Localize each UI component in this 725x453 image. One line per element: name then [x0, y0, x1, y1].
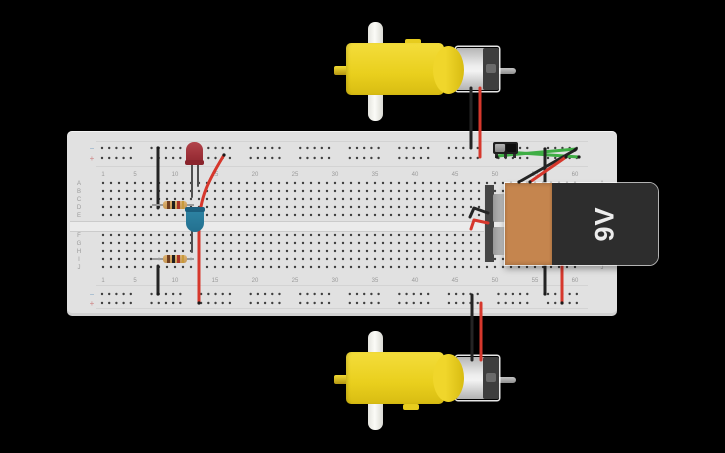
motor-gear-housing [433, 354, 464, 402]
led-red[interactable] [186, 142, 203, 165]
resistor-2[interactable] [152, 255, 194, 263]
battery-wrap [505, 183, 552, 265]
resistor-band-2 [172, 255, 175, 263]
motor-mount-tab [403, 404, 419, 410]
battery-voltage-label: 9V [590, 206, 621, 241]
battery-shell: 9V [552, 183, 658, 265]
switch-pin [504, 154, 507, 158]
slide-switch[interactable] [493, 142, 518, 154]
switch-pin [513, 154, 516, 158]
motor-gearbox [346, 43, 444, 95]
motor-bearing [486, 64, 496, 73]
switch-pin [495, 154, 498, 158]
resistor-band-4 [182, 255, 184, 263]
led-flange [185, 160, 204, 165]
motor-end-cap [483, 48, 499, 90]
circuit-canvas: 1155101015152020252530303535404045455050… [0, 0, 725, 453]
resistor-band-3 [177, 201, 180, 209]
resistor-band-1 [167, 201, 170, 209]
resistor-body [163, 255, 187, 263]
switch-well [506, 144, 516, 152]
motor-gear-housing [433, 46, 464, 94]
led-flange [185, 207, 205, 212]
resistor-band-4 [182, 201, 184, 209]
resistor-band-3 [177, 255, 180, 263]
resistor-band-1 [167, 255, 170, 263]
resistor-body [163, 201, 187, 209]
battery-body: 9V [505, 183, 658, 265]
resistor-band-2 [172, 201, 175, 209]
motor-gearbox [346, 352, 444, 404]
battery-9v[interactable]: 9V [484, 183, 658, 265]
motor-end-cap [483, 357, 499, 399]
led-blue[interactable] [186, 207, 204, 232]
switch-slider-knob[interactable] [495, 144, 505, 152]
motor-bearing [486, 373, 496, 382]
